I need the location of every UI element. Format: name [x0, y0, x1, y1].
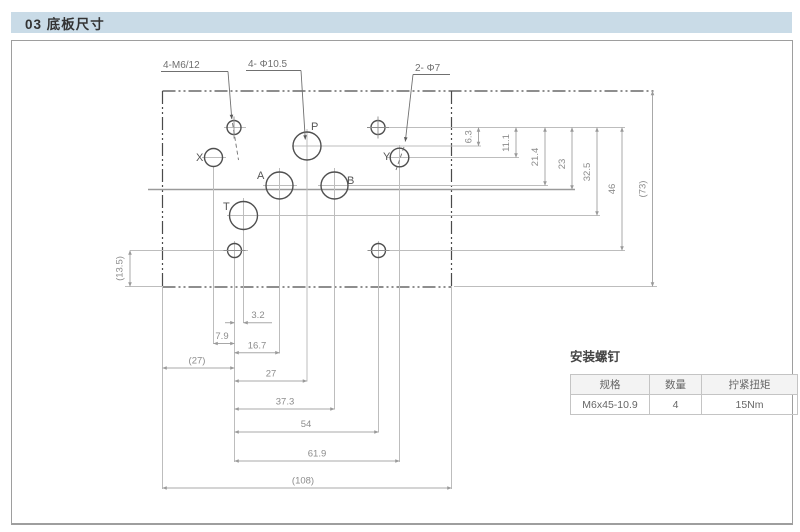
section-header-bar: 03 底板尺寸 [11, 12, 792, 33]
callout-phi7-label: 2- Φ7 [415, 63, 441, 74]
callout-m6: 4-M6/12 [161, 60, 239, 160]
dim-bottom-2: 16.7 [248, 341, 267, 352]
dim-right-1: 11.1 [501, 134, 512, 152]
port-label-b: B [347, 175, 354, 187]
extension-lines-horizontal [125, 128, 657, 287]
table-row: M6x45-10.9 4 15Nm [571, 395, 798, 415]
screws-spec-value: M6x45-10.9 [571, 395, 650, 415]
callout-m6-label: 4-M6/12 [163, 60, 200, 71]
dimension-left: (13.5) [115, 251, 131, 287]
callout-phi105-label: 4- Φ10.5 [248, 59, 288, 70]
dimensions-right: 6.3 11.1 21.4 23 32.5 46 (73) [464, 91, 653, 287]
screws-col-spec: 规格 [571, 375, 650, 395]
port-label-t: T [223, 201, 230, 213]
port-label-y: Y [383, 151, 391, 163]
dim-bottom-7: 61.9 [308, 449, 327, 460]
port-label-a: A [257, 170, 265, 182]
dim-right-0: 6.3 [464, 130, 475, 143]
dim-right-2: 21.4 [530, 148, 541, 167]
dim-right-6: (73) [638, 181, 649, 198]
screws-table-title: 安装螺钉 [570, 346, 798, 365]
screws-table: 规格 数量 拧紧扭矩 M6x45-10.9 4 15Nm [570, 374, 798, 415]
screws-qty-value: 4 [650, 395, 702, 415]
dim-bottom-6: 54 [301, 419, 312, 430]
screws-col-torque: 拧紧扭矩 [702, 375, 798, 395]
dim-bottom-8: (108) [292, 476, 314, 487]
dim-left-0: (13.5) [115, 256, 126, 281]
dim-bottom-3: (27) [189, 356, 206, 367]
dim-right-4: 32.5 [582, 163, 593, 182]
screws-torque-value: 15Nm [702, 395, 798, 415]
dim-bottom-1: 7.9 [215, 331, 228, 342]
dim-right-3: 23 [557, 159, 568, 170]
extension-lines-vertical [163, 129, 452, 489]
port-labels: P A B T X Y [196, 121, 391, 213]
callout-phi105: 4- Φ10.5 [246, 59, 305, 140]
port-label-x: X [196, 152, 204, 164]
catalog-page: 03 底板尺寸 [0, 0, 800, 532]
dim-bottom-5: 37.3 [276, 397, 295, 408]
dim-bottom-0: 3.2 [251, 310, 264, 321]
screws-section: 安装螺钉 规格 数量 拧紧扭矩 M6x45-10.9 4 15Nm [570, 346, 798, 415]
engineering-drawing: P A B T X Y 4-M6/12 4- Φ10.5 2- Φ7 [11, 40, 791, 522]
dim-right-5: 46 [607, 184, 618, 195]
section-title: 03 底板尺寸 [11, 13, 105, 33]
port-label-p: P [311, 121, 318, 133]
dim-bottom-4: 27 [266, 369, 277, 380]
screws-col-qty: 数量 [650, 375, 702, 395]
callout-phi7: 2- Φ7 [396, 63, 450, 170]
